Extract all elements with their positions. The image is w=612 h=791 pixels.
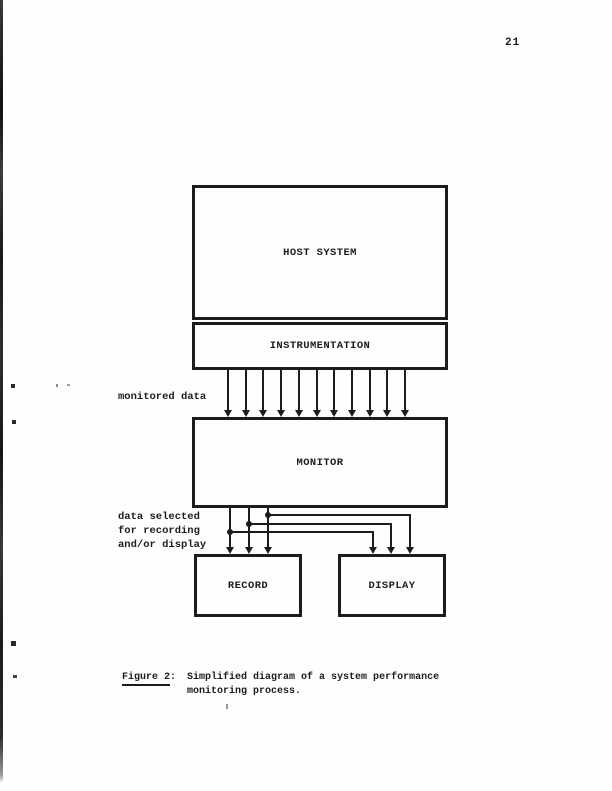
- branch-hline-2: [248, 523, 392, 525]
- node-display: DISPLAY: [338, 554, 446, 617]
- ink-speck: [13, 675, 17, 678]
- monitored-data-arrow: [404, 370, 406, 410]
- node-monitor-label: MONITOR: [297, 457, 344, 469]
- edge-label-data-selected: data selected for recording and/or displ…: [118, 510, 206, 552]
- edge-label-monitored-data: monitored data: [118, 390, 206, 404]
- monitored-data-arrow: [333, 370, 335, 410]
- node-monitor: MONITOR: [192, 417, 448, 508]
- node-instrumentation-label: INSTRUMENTATION: [270, 340, 371, 352]
- monitored-data-arrow: [369, 370, 371, 410]
- figure-caption-line1: Simplified diagram of a system performan…: [187, 671, 439, 685]
- branch-hline-3: [229, 531, 374, 533]
- ink-speck: [67, 384, 70, 386]
- node-host-system-label: HOST SYSTEM: [283, 247, 357, 259]
- ink-speck: [56, 384, 58, 387]
- figure-caption: Figure 2: Simplified diagram of a system…: [122, 671, 439, 699]
- ink-speck: [226, 704, 228, 709]
- edge-label-data-selected-line1: data selected: [118, 510, 206, 524]
- figure-caption-label-text: Figure 2: [122, 672, 170, 686]
- branch-to-display-line-1: [409, 514, 411, 547]
- ink-speck: [11, 384, 15, 388]
- figure-caption-text: Simplified diagram of a system performan…: [187, 671, 439, 699]
- ink-speck: [12, 420, 16, 424]
- node-record-label: RECORD: [228, 580, 268, 592]
- ink-speck: [11, 641, 16, 646]
- monitored-data-arrow: [227, 370, 229, 410]
- figure-caption-label: Figure 2:: [122, 671, 176, 699]
- branch-to-display-line-3: [372, 531, 374, 547]
- node-host-system: HOST SYSTEM: [192, 185, 448, 320]
- monitored-arrows: [228, 370, 405, 417]
- node-instrumentation: INSTRUMENTATION: [192, 322, 448, 370]
- node-record: RECORD: [194, 554, 302, 617]
- branch-hline-1: [267, 514, 411, 516]
- node-display-label: DISPLAY: [369, 580, 416, 592]
- document-page: 21 HOST SYSTEM INSTRUMENTATION monitored…: [0, 0, 612, 791]
- monitored-data-arrow: [298, 370, 300, 410]
- monitor-to-record-line-2: [248, 508, 250, 547]
- edge-label-data-selected-line3: and/or display: [118, 538, 206, 552]
- branch-to-display-line-2: [390, 523, 392, 547]
- figure-caption-line2: monitoring process.: [187, 685, 439, 699]
- monitored-data-arrow: [386, 370, 388, 410]
- monitor-to-record-line-1: [229, 508, 231, 547]
- figure-caption-label-colon: :: [170, 672, 176, 683]
- monitored-data-arrow: [245, 370, 247, 410]
- monitored-data-arrow: [316, 370, 318, 410]
- monitored-data-arrow: [262, 370, 264, 410]
- edge-label-data-selected-line2: for recording: [118, 524, 206, 538]
- monitored-data-arrow: [280, 370, 282, 410]
- monitored-data-arrow: [351, 370, 353, 410]
